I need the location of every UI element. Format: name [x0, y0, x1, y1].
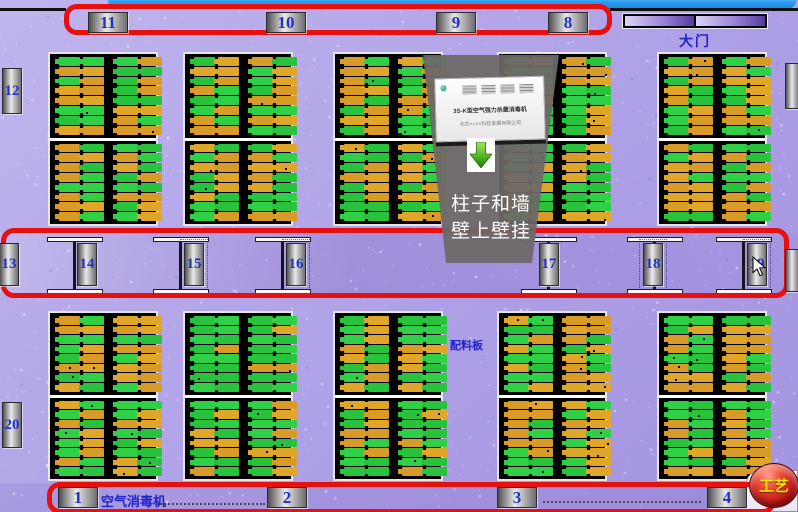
tray-bar — [117, 326, 138, 335]
tray-bar — [344, 202, 365, 211]
tray-bar — [402, 57, 423, 66]
tray-bar — [368, 420, 389, 429]
machine-tag-17[interactable]: 17 — [539, 243, 559, 286]
machine-tag-14[interactable]: 14 — [77, 243, 97, 286]
tray-bar — [402, 86, 423, 95]
tray-bar — [692, 467, 713, 476]
tray-bar — [402, 193, 423, 202]
tray-bar — [59, 420, 80, 429]
tray-bar — [276, 448, 297, 457]
tray-bar — [117, 335, 138, 344]
tray-bar — [83, 467, 104, 476]
tray-bar — [194, 116, 215, 125]
tray-bar — [141, 67, 162, 76]
machine-tag-4[interactable]: 4 — [707, 487, 747, 508]
tray-bar — [218, 202, 239, 211]
tray-bar — [368, 316, 389, 325]
tray-bar — [141, 183, 162, 192]
tray-bar — [726, 163, 747, 172]
tray-bar — [141, 420, 162, 429]
tray-bar — [194, 345, 215, 354]
tray-bar — [532, 439, 553, 448]
tray-bar — [276, 364, 297, 373]
tray-bar — [276, 67, 297, 76]
tray-bar — [590, 410, 611, 419]
tray-bar — [252, 335, 273, 344]
tray-bar — [368, 67, 389, 76]
tray-bar — [194, 163, 215, 172]
tray-bar — [590, 77, 611, 86]
tray-bar — [566, 316, 587, 325]
tray-bar — [117, 373, 138, 382]
tray-bar — [344, 163, 365, 172]
tray-bar — [508, 401, 529, 410]
tray-bar — [194, 144, 215, 153]
tray-bar — [726, 448, 747, 457]
tray-bar — [566, 448, 587, 457]
tray-bar — [750, 193, 771, 202]
tray-bar — [668, 57, 689, 66]
tray-bar — [750, 373, 771, 382]
tray-bar — [252, 383, 273, 392]
tray-bar — [726, 106, 747, 115]
tray-bar — [590, 212, 611, 221]
tray-bar — [590, 429, 611, 438]
tray-bar — [141, 467, 162, 476]
tray-bar — [117, 106, 138, 115]
tray-bar — [590, 439, 611, 448]
tray-bar — [344, 126, 365, 135]
tray-bar — [218, 354, 239, 363]
tray-bar — [426, 326, 447, 335]
tray-bar — [218, 364, 239, 373]
tray-bar — [590, 316, 611, 325]
tray-bar — [344, 448, 365, 457]
tray-bar — [344, 86, 365, 95]
tray-bar — [252, 77, 273, 86]
tray-bar — [194, 86, 215, 95]
tray-bar — [402, 163, 423, 172]
tray-bar — [750, 144, 771, 153]
tray-bar — [344, 173, 365, 182]
tray-bar — [252, 57, 273, 66]
tray-bar — [344, 439, 365, 448]
tray-bar — [194, 335, 215, 344]
tray-bar — [508, 467, 529, 476]
tray-bar — [218, 467, 239, 476]
tray-bar — [750, 116, 771, 125]
tray-bar — [83, 106, 104, 115]
tray-bar — [750, 345, 771, 354]
tray-bar — [368, 401, 389, 410]
tray-bar — [218, 57, 239, 66]
tray-bar — [141, 193, 162, 202]
tray-bar — [566, 67, 587, 76]
tray-bar — [83, 153, 104, 162]
tray-bar — [590, 420, 611, 429]
tray-bar — [83, 57, 104, 66]
tray-bar — [276, 420, 297, 429]
machine-tag-2[interactable]: 2 — [267, 487, 307, 508]
tray-bar — [668, 116, 689, 125]
tray-bar — [590, 458, 611, 467]
tray-bar — [508, 364, 529, 373]
tray-bar — [668, 439, 689, 448]
tray-bar — [344, 316, 365, 325]
tray-bar — [218, 67, 239, 76]
tray-bar — [59, 126, 80, 135]
tray-bar — [218, 183, 239, 192]
mouse-cursor-icon — [752, 256, 767, 277]
tray-bar — [566, 439, 587, 448]
tray-bar — [508, 373, 529, 382]
tray-bar — [402, 420, 423, 429]
tray-bar — [590, 401, 611, 410]
machine-tag-10[interactable]: 10 — [266, 12, 306, 33]
machine-tag-1[interactable]: 1 — [58, 487, 98, 508]
tray-bar — [566, 144, 587, 153]
tray-bar — [668, 326, 689, 335]
tray-bar — [117, 77, 138, 86]
tray-bar — [368, 126, 389, 135]
tray-bar — [532, 420, 553, 429]
tray-bar — [252, 126, 273, 135]
tray-bar — [194, 429, 215, 438]
tray-bar — [141, 116, 162, 125]
tray-bar — [726, 116, 747, 125]
tray-bar — [218, 345, 239, 354]
tray-bar — [668, 77, 689, 86]
tray-bar — [566, 335, 587, 344]
tray-bar — [117, 116, 138, 125]
tray-bar — [402, 144, 423, 153]
tray-bar — [141, 86, 162, 95]
tray-bar — [368, 212, 389, 221]
tray-bar — [117, 383, 138, 392]
tray-bar — [344, 57, 365, 66]
tray-bar — [402, 335, 423, 344]
tray-bar — [194, 354, 215, 363]
tray-bar — [532, 429, 553, 438]
tray-bar — [750, 67, 771, 76]
machine-tag-13[interactable]: 13 — [0, 243, 19, 286]
tray-bar — [218, 77, 239, 86]
tray-bar — [426, 420, 447, 429]
tray-bar — [276, 86, 297, 95]
tray-bar — [83, 383, 104, 392]
tray-bar — [590, 96, 611, 105]
tray-bar — [83, 163, 104, 172]
tray-bar — [218, 326, 239, 335]
tray-bar — [402, 77, 423, 86]
tray-bar — [750, 126, 771, 135]
tray-bar — [402, 116, 423, 125]
tray-bar — [83, 354, 104, 363]
tray-bar — [276, 410, 297, 419]
tray-bar — [692, 86, 713, 95]
tray-bar — [368, 345, 389, 354]
tray-bar — [508, 410, 529, 419]
machine-tag-16[interactable]: 16 — [286, 243, 306, 286]
machine-tag-11[interactable]: 11 — [88, 12, 128, 33]
tray-bar — [692, 183, 713, 192]
machine-tag-18[interactable]: 18 — [643, 243, 663, 286]
tray-bar — [566, 345, 587, 354]
tray-bar — [668, 202, 689, 211]
machine-tag-20[interactable]: 20 — [2, 402, 22, 448]
tray-bar — [218, 153, 239, 162]
tray-bar — [252, 354, 273, 363]
tray-bar — [402, 173, 423, 182]
tray-bar — [59, 458, 80, 467]
tray-bar — [566, 458, 587, 467]
machine-tag-cut-right-mid[interactable] — [785, 249, 798, 292]
process-button[interactable]: 工艺 — [749, 463, 798, 508]
tray-bar — [276, 116, 297, 125]
tray-bar — [194, 202, 215, 211]
tray-bar — [59, 335, 80, 344]
tray-bar — [59, 439, 80, 448]
tray-bar — [532, 373, 553, 382]
tray-bar — [117, 57, 138, 66]
tray-bar — [218, 420, 239, 429]
tray-bar — [726, 212, 747, 221]
machine-tag-8[interactable]: 8 — [548, 12, 588, 33]
tray-bar — [59, 153, 80, 162]
tray-bar — [117, 429, 138, 438]
tray-bar — [692, 67, 713, 76]
tray-bar — [402, 316, 423, 325]
tray-bar — [59, 448, 80, 457]
tray-bar — [117, 410, 138, 419]
tray-bar — [117, 316, 138, 325]
tray-bar — [402, 106, 423, 115]
tray-bar — [117, 144, 138, 153]
tray-bar — [59, 86, 80, 95]
tray-bar — [117, 448, 138, 457]
tray-bar — [402, 326, 423, 335]
tray-bar — [252, 373, 273, 382]
tray-bar — [83, 316, 104, 325]
tray-bar — [59, 429, 80, 438]
tray-bar — [83, 448, 104, 457]
tray-bar — [117, 420, 138, 429]
tray-bar — [117, 345, 138, 354]
tray-bar — [117, 86, 138, 95]
tray-bar — [590, 202, 611, 211]
tray-bar — [59, 57, 80, 66]
tray-bar — [141, 429, 162, 438]
tray-bar — [508, 383, 529, 392]
tray-bar — [402, 467, 423, 476]
tray-bar — [218, 458, 239, 467]
growing-rack — [333, 311, 443, 481]
tray-bar — [276, 429, 297, 438]
tray-bar — [402, 96, 423, 105]
tray-bar — [117, 401, 138, 410]
machine-tag-3[interactable]: 3 — [497, 487, 537, 508]
tray-bar — [83, 458, 104, 467]
tray-bar — [750, 57, 771, 66]
tray-bar — [194, 439, 215, 448]
tray-bar — [692, 326, 713, 335]
tray-bar — [218, 193, 239, 202]
facility-floorplan: 大门 11 10 9 8 12 20 13 14 15 16 17 18 19 … — [0, 0, 798, 512]
tray-bar — [83, 202, 104, 211]
tray-bar — [218, 212, 239, 221]
tray-bar — [117, 96, 138, 105]
tray-bar — [750, 439, 771, 448]
tray-bar — [117, 467, 138, 476]
tray-bar — [668, 183, 689, 192]
tray-bar — [532, 326, 553, 335]
tray-bar — [726, 364, 747, 373]
tray-bar — [276, 96, 297, 105]
tray-bar — [194, 57, 215, 66]
tray-bar — [426, 410, 447, 419]
tray-bar — [83, 335, 104, 344]
tray-bar — [402, 345, 423, 354]
tray-bar — [402, 383, 423, 392]
tray-bar — [566, 183, 587, 192]
tray-bar — [750, 212, 771, 221]
tray-bar — [692, 345, 713, 354]
tray-bar — [368, 429, 389, 438]
tray-bar — [566, 163, 587, 172]
tray-bar — [141, 212, 162, 221]
tray-bar — [750, 202, 771, 211]
tray-bar — [59, 212, 80, 221]
tray-bar — [59, 373, 80, 382]
tray-bar — [141, 173, 162, 182]
tray-bar — [276, 173, 297, 182]
tray-bar — [252, 173, 273, 182]
tray-bar — [692, 193, 713, 202]
tray-bar — [218, 116, 239, 125]
tray-bar — [194, 373, 215, 382]
tray-bar — [426, 401, 447, 410]
tray-bar — [368, 326, 389, 335]
tray-bar — [508, 335, 529, 344]
tray-bar — [692, 212, 713, 221]
tray-bar — [668, 106, 689, 115]
tray-bar — [194, 126, 215, 135]
tray-bar — [668, 410, 689, 419]
tray-bar — [59, 144, 80, 153]
tray-bar — [83, 326, 104, 335]
tray-bar — [750, 326, 771, 335]
machine-tag-12[interactable]: 12 — [2, 68, 22, 114]
tray-bar — [368, 96, 389, 105]
tray-bar — [59, 116, 80, 125]
tray-bar — [276, 106, 297, 115]
tray-bar — [368, 354, 389, 363]
tray-bar — [117, 153, 138, 162]
tray-bar — [368, 163, 389, 172]
tray-bar — [344, 467, 365, 476]
tray-bar — [218, 96, 239, 105]
tray-bar — [750, 401, 771, 410]
tray-bar — [276, 373, 297, 382]
tray-bar — [117, 183, 138, 192]
tray-bar — [218, 316, 239, 325]
tray-bar — [252, 163, 273, 172]
machine-tag-9[interactable]: 9 — [436, 12, 476, 33]
tray-bar — [368, 458, 389, 467]
tray-bar — [368, 106, 389, 115]
tray-bar — [59, 345, 80, 354]
tray-bar — [344, 183, 365, 192]
tray-bar — [276, 153, 297, 162]
tray-bar — [750, 77, 771, 86]
tray-bar — [402, 458, 423, 467]
sterilizer-product-image: 3S-K型空气强力杀菌消毒机 北京××××科技发展有限公司 — [434, 76, 546, 143]
tray-bar — [276, 326, 297, 335]
down-arrow-icon — [467, 138, 495, 172]
tray-bar — [141, 364, 162, 373]
tray-bar — [590, 106, 611, 115]
tray-bar — [218, 410, 239, 419]
tray-bar — [194, 448, 215, 457]
tray-bar — [344, 401, 365, 410]
tray-bar — [368, 439, 389, 448]
tray-bar — [426, 467, 447, 476]
tray-bar — [402, 202, 423, 211]
tray-bar — [276, 354, 297, 363]
tray-bar — [252, 316, 273, 325]
tray-bar — [59, 173, 80, 182]
tray-bar — [668, 153, 689, 162]
tray-bar — [750, 163, 771, 172]
tray-bar — [566, 96, 587, 105]
tray-bar — [532, 364, 553, 373]
tray-bar — [368, 467, 389, 476]
tray-bar — [426, 448, 447, 457]
tray-bar — [532, 467, 553, 476]
tray-bar — [566, 364, 587, 373]
tray-bar — [750, 420, 771, 429]
tray-bar — [726, 96, 747, 105]
material-board-label: 配料板 — [450, 337, 483, 353]
tray-bar — [344, 345, 365, 354]
tray-bar — [692, 439, 713, 448]
tray-bar — [276, 202, 297, 211]
machine-tag-cut-right-top[interactable] — [785, 63, 798, 109]
tray-bar — [252, 183, 273, 192]
tray-bar — [276, 316, 297, 325]
tray-bar — [668, 193, 689, 202]
tray-bar — [726, 401, 747, 410]
tray-bar — [368, 183, 389, 192]
tray-bar — [692, 163, 713, 172]
tray-bar — [750, 86, 771, 95]
tray-bar — [276, 383, 297, 392]
tray-bar — [218, 173, 239, 182]
tray-bar — [692, 364, 713, 373]
tray-bar — [141, 106, 162, 115]
tray-bar — [252, 401, 273, 410]
tray-bar — [668, 316, 689, 325]
tray-bar — [726, 183, 747, 192]
tray-bar — [194, 212, 215, 221]
tray-bar — [344, 77, 365, 86]
tray-bar — [426, 373, 447, 382]
tray-bar — [692, 202, 713, 211]
machine-tag-15[interactable]: 15 — [184, 243, 204, 286]
tray-bar — [368, 116, 389, 125]
tray-bar — [59, 183, 80, 192]
tray-bar — [59, 77, 80, 86]
